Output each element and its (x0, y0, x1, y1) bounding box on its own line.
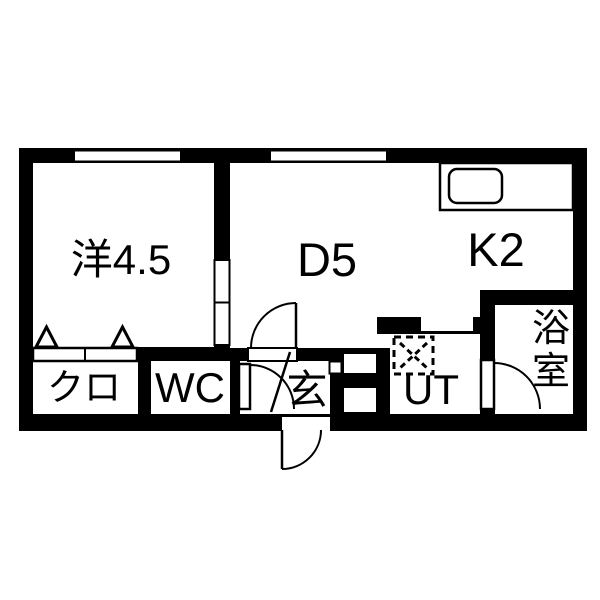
room-label-toilet: WC (155, 364, 225, 411)
exterior-wall-left (19, 148, 33, 431)
folding-door-icon (33, 327, 137, 361)
room-label-entrance: 玄 (287, 367, 328, 413)
room-label-bathroom-bottom: 室 (532, 351, 570, 393)
floor-plan: 洋4.5 D5 K2 クロ WC 玄 UT 浴 室 (0, 0, 600, 600)
sink-icon (449, 169, 502, 203)
room-label-dining: D5 (297, 233, 357, 286)
room-label-kitchen: K2 (467, 223, 525, 276)
interior-wall-bathroom-top (480, 290, 587, 305)
room-label-bathroom-top: 浴 (532, 308, 570, 350)
kitchen-counter (440, 163, 573, 210)
room-label-closet: クロ (47, 367, 121, 408)
door-front-entrance-icon (282, 430, 321, 469)
window-western-icon (75, 152, 180, 161)
room-label-western: 洋4.5 (71, 236, 171, 283)
room-label-utility: UT (403, 366, 459, 413)
interior-wall-closet-wc (138, 361, 151, 414)
interior-wall-utility-bathroom (480, 290, 495, 362)
interior-wall-bathroom-stub (480, 409, 495, 419)
floor-plan-drawing: 洋4.5 D5 K2 クロ WC 玄 UT 浴 室 (0, 0, 600, 600)
window-dining-icon (271, 152, 386, 161)
front-door-opening (282, 417, 330, 431)
exterior-wall-right (573, 148, 587, 431)
sliding-door-icon (215, 260, 230, 345)
utility-passage-opening (421, 317, 473, 331)
